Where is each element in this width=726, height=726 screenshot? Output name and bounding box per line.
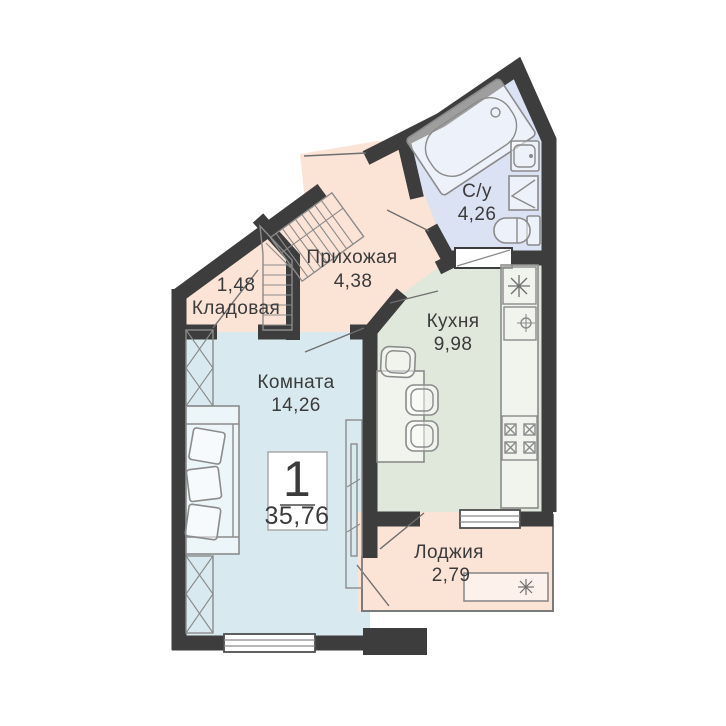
bathroom-name: С/у [462, 181, 492, 202]
floorplan-svg: 1 35,76 С/у 4,26 Прихожая 4,38 1,48 Клад… [0, 0, 726, 726]
kitchen-name: Кухня [427, 311, 480, 332]
washing-machine [509, 176, 538, 210]
wall-corner-block [363, 628, 427, 655]
pillow [188, 427, 225, 464]
window-kitchen-loggia [460, 510, 520, 528]
kitchen-area: 9,98 [434, 334, 473, 355]
toilet [494, 216, 540, 245]
area-badge: 1 35,76 [264, 451, 329, 530]
pillow [185, 504, 221, 540]
sofa [185, 406, 239, 554]
total-area: 35,76 [264, 502, 329, 530]
living-area: 14,26 [271, 395, 321, 416]
kitchen-counter [501, 265, 538, 508]
kitchen-chair [406, 421, 438, 451]
hallway-area: 4,38 [334, 271, 373, 292]
kitchen-chair [406, 385, 438, 415]
bathroom-sink [511, 141, 539, 171]
kitchen-chair [380, 346, 416, 378]
storage-name: Кладовая [192, 298, 280, 319]
storage-area: 1,48 [217, 275, 256, 296]
loggia-area: 2,79 [432, 565, 471, 586]
pillow [186, 466, 222, 502]
loggia-cabinet [464, 573, 548, 601]
bathroom-area: 4,26 [458, 204, 497, 225]
living-name: Комната [257, 372, 334, 393]
loggia-name: Лоджия [414, 542, 484, 563]
floorplan-canvas: 1 35,76 С/у 4,26 Прихожая 4,38 1,48 Клад… [0, 0, 726, 726]
window-living [224, 634, 315, 652]
rooms-count: 1 [283, 451, 311, 507]
hallway-name: Прихожая [306, 247, 397, 268]
